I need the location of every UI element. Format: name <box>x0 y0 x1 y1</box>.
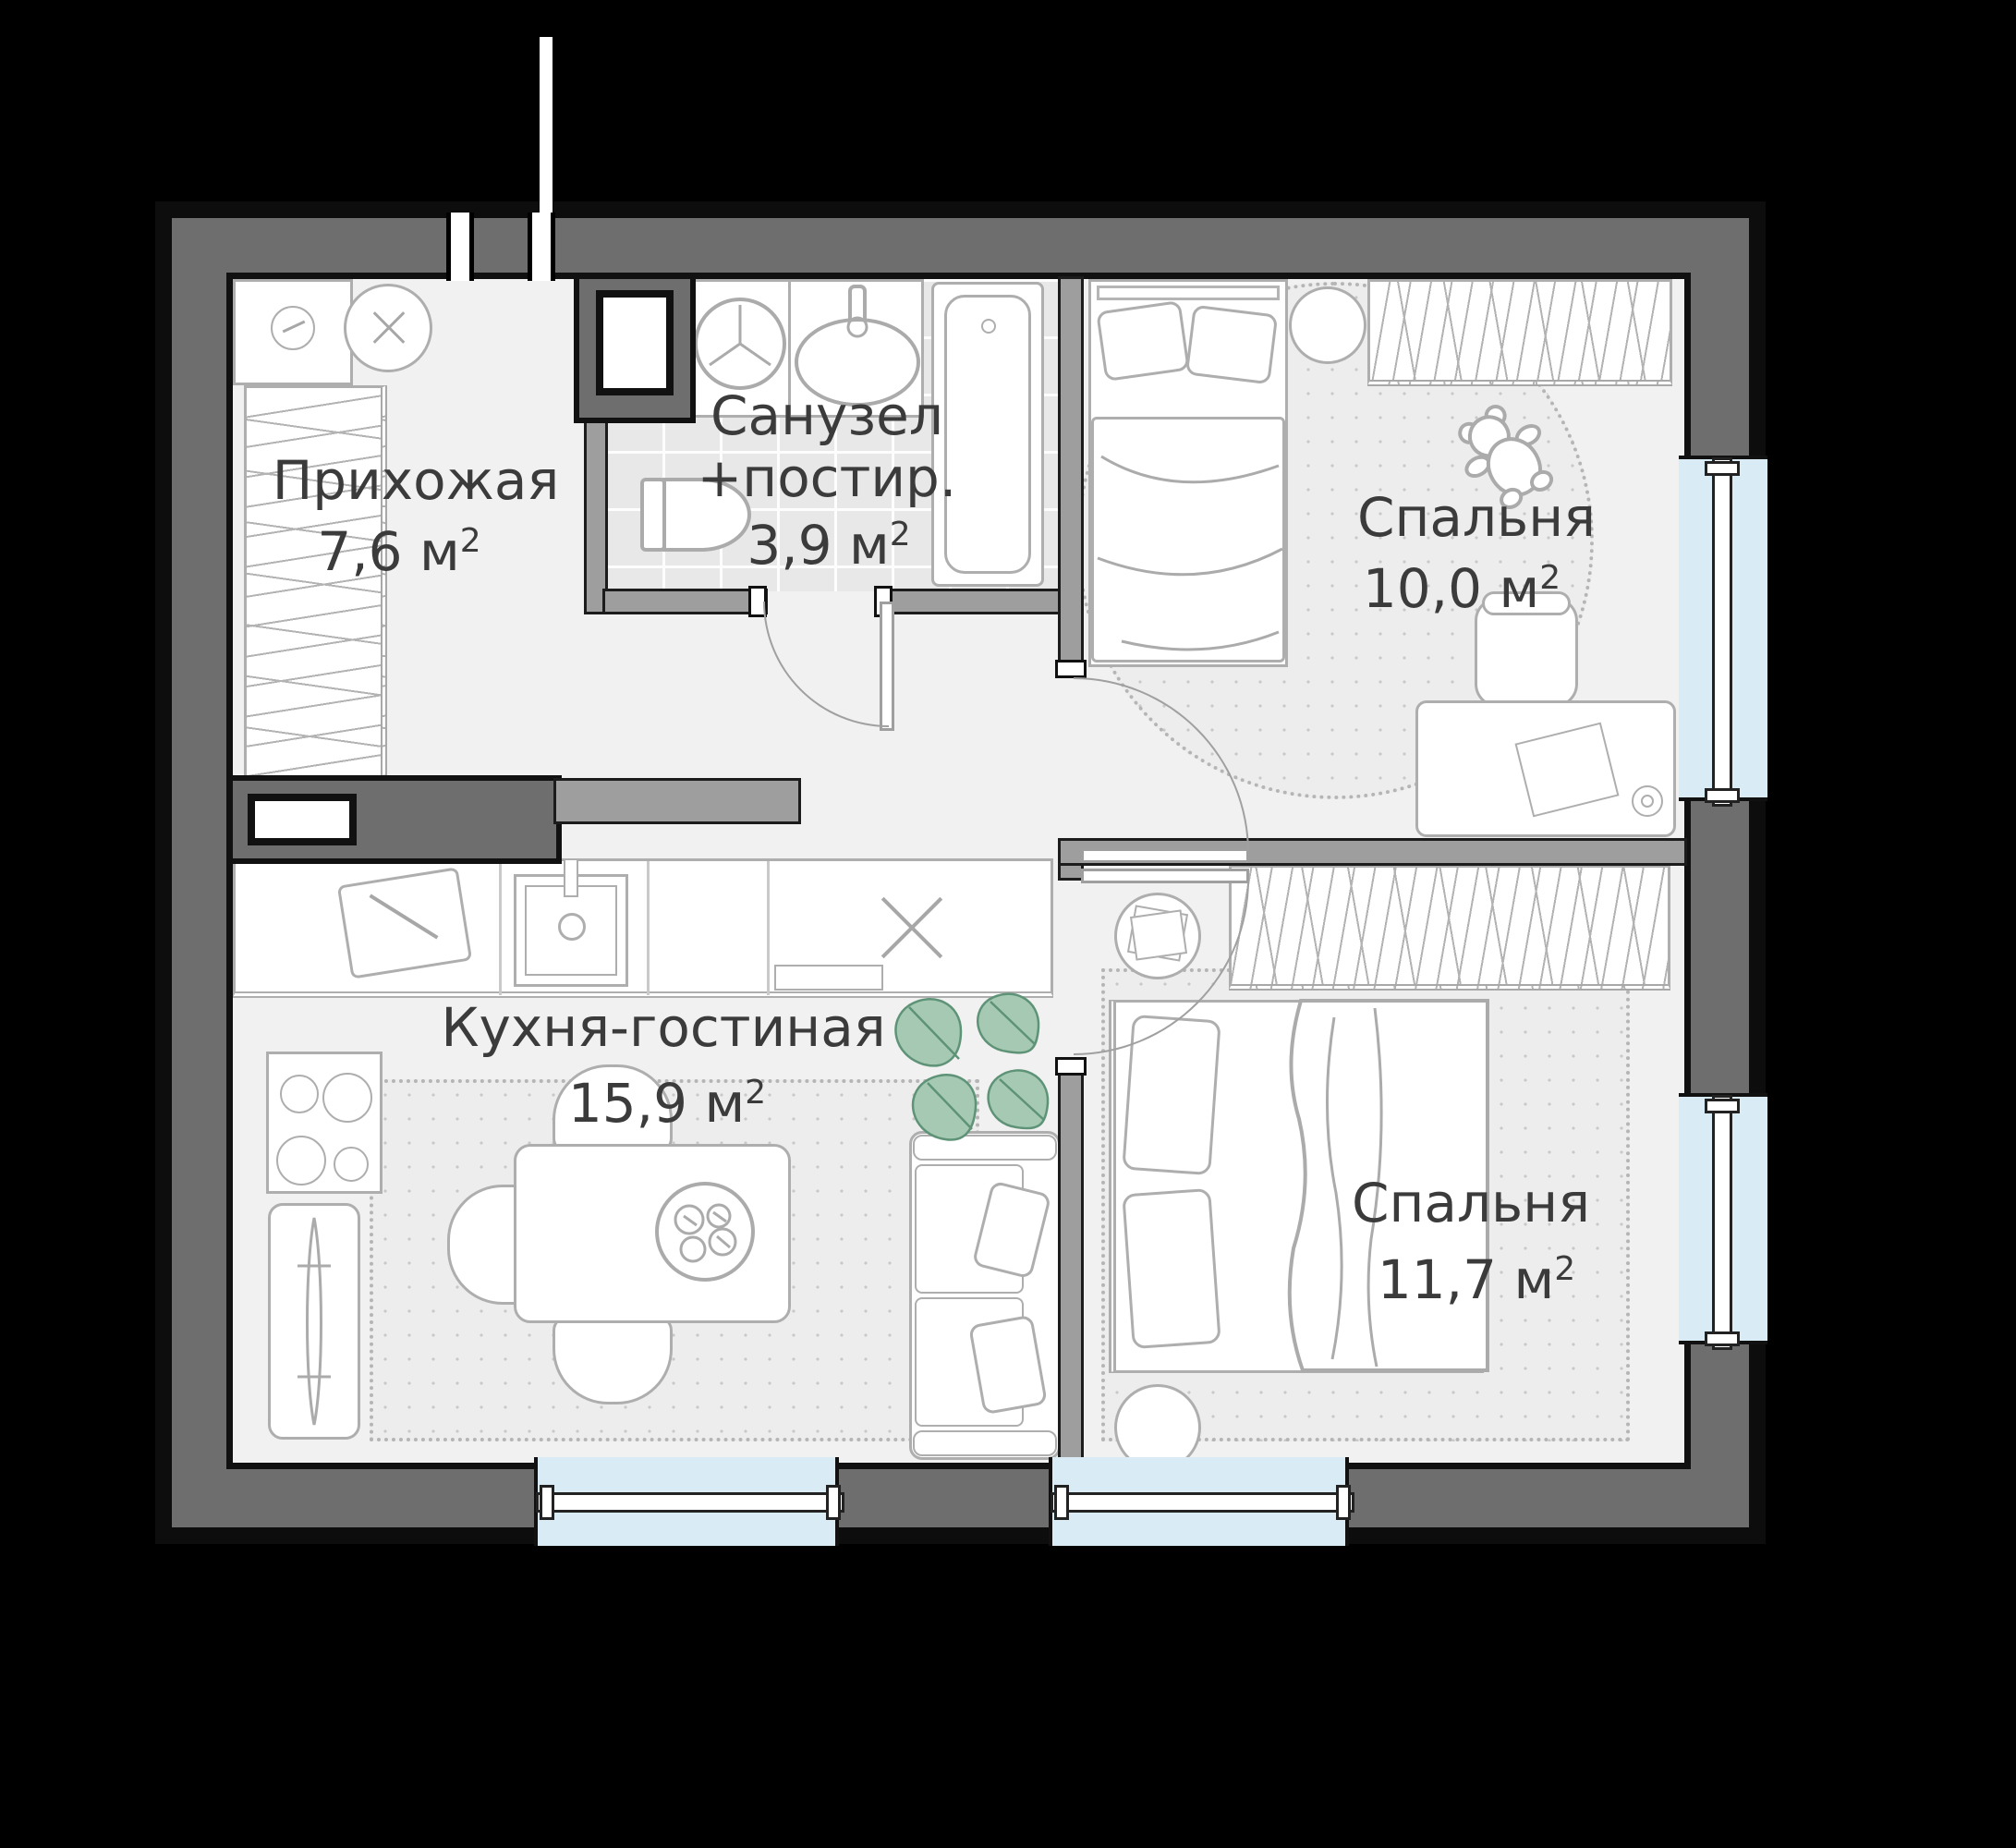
room-label-bathroom-name2: +постир. <box>698 451 957 505</box>
room-label-bathroom-area: 3,9 м2 <box>747 518 910 572</box>
door-jamb <box>1055 660 1087 678</box>
sofa-armrest <box>913 1430 1057 1456</box>
pillow <box>1185 305 1279 385</box>
room-label-living-name: Кухня-гостиная <box>441 1001 885 1054</box>
bedside-stool <box>1289 286 1366 364</box>
counter-drawer <box>774 965 883 991</box>
door-jamb <box>1055 1057 1087 1076</box>
window <box>1679 1093 1767 1344</box>
kitchen-wall-tail <box>556 781 798 821</box>
bed-single <box>1088 279 1288 667</box>
monstera-plant-icon <box>876 983 1065 1159</box>
burner <box>334 1147 369 1182</box>
bathtub-inner <box>944 295 1031 574</box>
radiator-icon <box>296 1212 333 1430</box>
floor-plan: Прихожая 7,6 м2 Санузел +постир. 3,9 м2 … <box>0 0 2016 1848</box>
plate-with-food-icon <box>652 1179 758 1284</box>
window <box>1679 456 1767 801</box>
window <box>1049 1457 1349 1546</box>
pillow <box>1122 1188 1221 1349</box>
room-label-hallway-name: Прихожая <box>273 454 560 507</box>
room-label-living-area: 15,9 м2 <box>568 1076 766 1130</box>
room-label-bedroom2-area: 11,7 м2 <box>1378 1253 1575 1307</box>
cutting-board <box>337 867 472 979</box>
bathtub-drain <box>981 319 996 334</box>
headboard <box>1097 286 1280 300</box>
corridor-mark <box>540 37 553 214</box>
corridor-wall <box>1061 1063 1081 1463</box>
room-label-hallway-area: 7,6 м2 <box>317 525 480 578</box>
bathroom-bottom-wall <box>889 591 1061 612</box>
wardrobe <box>1367 279 1672 386</box>
burner <box>276 1136 326 1185</box>
room-label-bathroom-name1: Санузел <box>710 389 943 443</box>
burner <box>280 1075 319 1113</box>
counter-divider <box>767 861 770 995</box>
window <box>534 1457 839 1546</box>
bathroom-bottom-wall <box>605 591 765 612</box>
pillow <box>1096 300 1190 382</box>
burner <box>322 1073 372 1123</box>
counter-divider <box>647 861 650 995</box>
room-label-bedroom1-name: Спальня <box>1357 491 1596 544</box>
faucet-base <box>558 913 586 941</box>
entry-opening <box>528 213 555 281</box>
blanket <box>1091 417 1285 663</box>
kitchen-shaft <box>248 794 357 845</box>
wardrobe <box>1229 865 1670 991</box>
counter-divider <box>499 861 502 995</box>
corridor-wall <box>1061 279 1081 675</box>
room-label-bedroom2-name: Спальня <box>1352 1176 1590 1230</box>
ventilation-shaft <box>596 290 674 395</box>
wall-opening <box>446 213 474 281</box>
faucet <box>564 858 578 897</box>
room-label-bedroom1-area: 10,0 м2 <box>1363 562 1561 615</box>
desk-mug-dot <box>1641 795 1654 808</box>
